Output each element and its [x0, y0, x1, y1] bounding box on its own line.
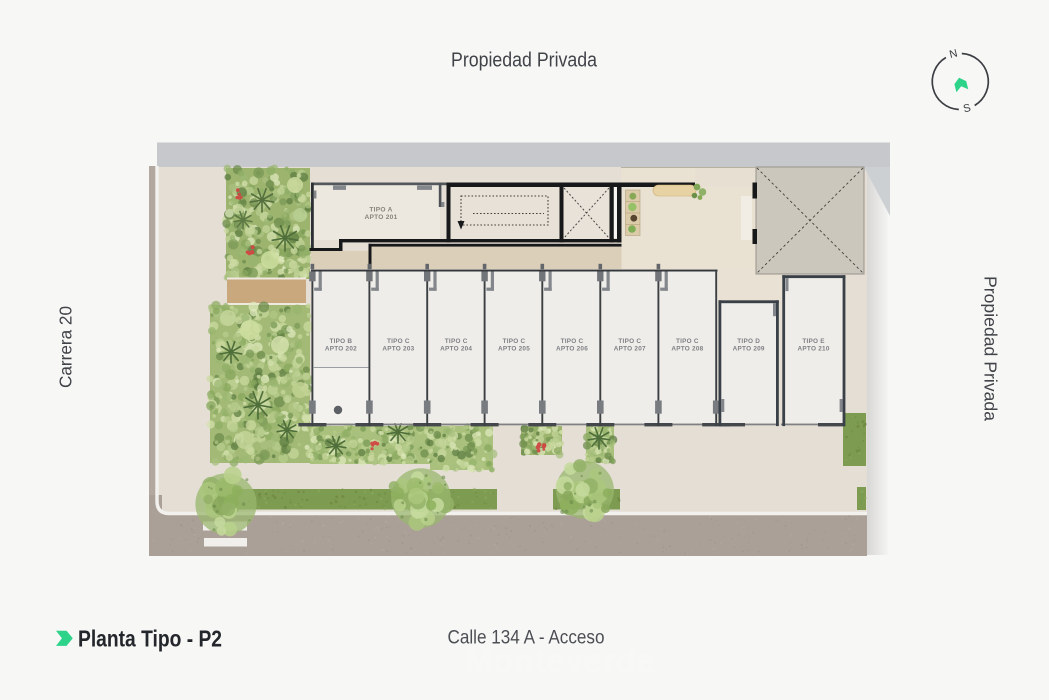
svg-text:TIPO B: TIPO B	[329, 338, 352, 345]
svg-text:APTO 201: APTO 201	[364, 214, 397, 221]
svg-text:APTO 207: APTO 207	[614, 346, 646, 353]
svg-text:TIPO A: TIPO A	[369, 207, 392, 214]
svg-text:Planta Tipo - P2: Planta Tipo - P2	[78, 626, 222, 652]
svg-text:APTO 210: APTO 210	[798, 346, 830, 353]
svg-text:APTO 204: APTO 204	[440, 346, 472, 353]
svg-text:TIPO C: TIPO C	[618, 338, 641, 345]
svg-text:TIPO C: TIPO C	[445, 338, 468, 345]
svg-text:TIPO E: TIPO E	[802, 338, 825, 345]
svg-text:APTO 202: APTO 202	[325, 346, 357, 353]
svg-text:Monteverde: Monteverde	[465, 642, 656, 680]
svg-text:APTO 209: APTO 209	[733, 346, 765, 353]
svg-text:Propiedad Privada: Propiedad Privada	[981, 276, 1001, 421]
svg-text:TIPO C: TIPO C	[387, 338, 410, 345]
svg-text:TIPO C: TIPO C	[503, 338, 526, 345]
svg-text:APTO 206: APTO 206	[556, 346, 588, 353]
svg-text:Carrera 20: Carrera 20	[56, 306, 76, 388]
svg-text:APTO 208: APTO 208	[671, 346, 703, 353]
svg-text:TIPO C: TIPO C	[676, 338, 699, 345]
svg-text:APTO 203: APTO 203	[382, 346, 414, 353]
svg-text:APTO 205: APTO 205	[498, 346, 530, 353]
svg-text:TIPO C: TIPO C	[561, 338, 584, 345]
svg-text:Propiedad Privada: Propiedad Privada	[451, 50, 598, 72]
svg-text:TIPO D: TIPO D	[737, 338, 760, 345]
